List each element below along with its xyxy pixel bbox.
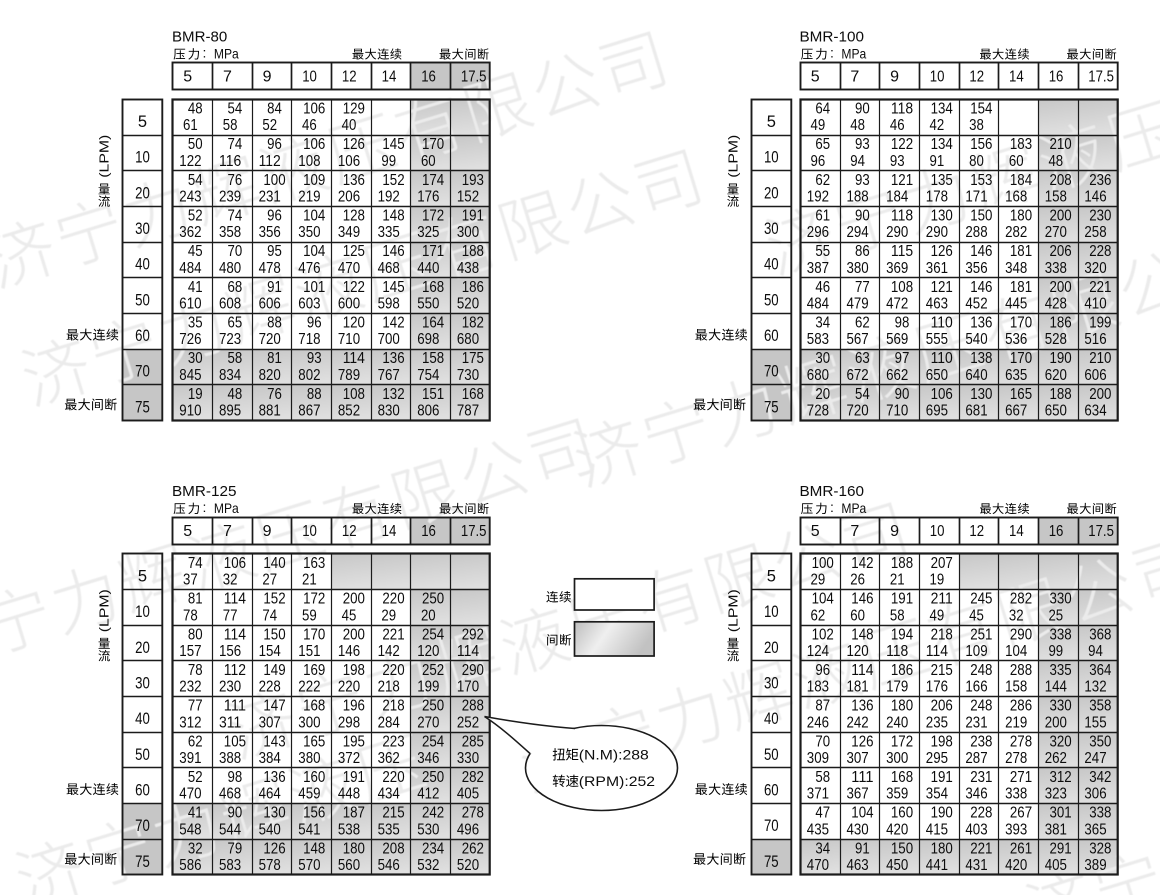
svg-text:620: 620 [1045,367,1067,384]
svg-text:130: 130 [263,805,285,822]
svg-text:168: 168 [462,386,484,403]
svg-text:157: 157 [179,643,201,660]
svg-text:40: 40 [764,710,779,728]
svg-text:349: 349 [338,224,360,241]
svg-text:96: 96 [307,315,322,332]
svg-text:77: 77 [855,279,870,296]
svg-text:431: 431 [965,857,987,874]
svg-text:384: 384 [259,750,281,767]
svg-text:362: 362 [179,224,201,241]
svg-text:154: 154 [259,643,281,660]
svg-text:405: 405 [457,786,479,803]
svg-text:62: 62 [811,607,826,624]
svg-text:358: 358 [1089,698,1111,715]
svg-text:93: 93 [855,172,870,189]
svg-text:41: 41 [188,279,203,296]
svg-text:290: 290 [926,224,948,241]
svg-text:468: 468 [378,260,400,277]
svg-text:258: 258 [1084,224,1106,241]
svg-text:640: 640 [965,367,987,384]
svg-text:110: 110 [931,350,953,367]
svg-text:(N.M):288: (N.M):288 [579,748,649,764]
svg-text:239: 239 [219,189,241,206]
svg-text:387: 387 [807,260,829,277]
svg-text:220: 220 [382,591,404,608]
svg-text:282: 282 [1005,224,1027,241]
svg-text:307: 307 [259,714,281,731]
svg-text:282: 282 [462,769,484,786]
svg-text:7: 7 [223,69,232,86]
svg-text:698: 698 [417,331,439,348]
svg-text:220: 220 [338,679,360,696]
svg-text:789: 789 [338,367,360,384]
svg-text:106: 106 [224,555,246,572]
svg-text:228: 228 [970,805,992,822]
svg-text:470: 470 [807,857,829,874]
svg-text:367: 367 [847,786,869,803]
svg-text:76: 76 [267,386,282,403]
svg-text:94: 94 [1088,643,1103,660]
svg-text:452: 452 [965,296,987,313]
svg-text:248: 248 [970,698,992,715]
svg-text:186: 186 [1050,315,1072,332]
svg-text:191: 191 [891,591,913,608]
svg-text:163: 163 [303,555,325,572]
svg-text:158: 158 [422,350,444,367]
svg-text:191: 191 [931,769,953,786]
svg-text:99: 99 [381,153,396,170]
svg-text:140: 140 [263,555,285,572]
svg-text:134: 134 [931,100,953,117]
svg-text:180: 180 [1010,207,1032,224]
svg-text:62: 62 [815,172,830,189]
svg-text:723: 723 [219,331,241,348]
svg-text:578: 578 [259,857,281,874]
svg-text:26: 26 [850,572,865,589]
svg-text:434: 434 [378,786,400,803]
svg-text:176: 176 [926,679,948,696]
svg-text:496: 496 [457,821,479,838]
svg-text:516: 516 [1084,331,1106,348]
svg-text:90: 90 [895,386,910,403]
svg-text:218: 218 [931,626,953,643]
svg-text:222: 222 [298,679,320,696]
svg-text:270: 270 [1045,224,1067,241]
svg-text:220: 220 [382,662,404,679]
svg-text:88: 88 [267,315,282,332]
svg-text:29: 29 [381,607,396,624]
svg-text:77: 77 [223,607,238,624]
svg-text:130: 130 [970,386,992,403]
svg-text:250: 250 [422,591,444,608]
svg-text:40: 40 [342,117,357,134]
svg-text:47: 47 [815,805,830,822]
svg-text:330: 330 [1050,698,1072,715]
svg-text:867: 867 [298,403,320,420]
svg-text:754: 754 [417,367,439,384]
svg-text:10: 10 [764,603,779,621]
svg-text:242: 242 [847,714,869,731]
svg-text:300: 300 [298,714,320,731]
svg-text:261: 261 [1010,840,1032,857]
svg-text:58: 58 [890,607,905,624]
svg-text:541: 541 [298,821,320,838]
svg-text::: : [203,499,207,515]
svg-text:250: 250 [422,769,444,786]
svg-text:45: 45 [188,243,203,260]
svg-text:129: 129 [343,100,365,117]
svg-text:42: 42 [930,117,945,134]
svg-text:14: 14 [1009,523,1024,540]
svg-text:208: 208 [1050,172,1072,189]
svg-text:16: 16 [1049,69,1064,86]
svg-text:231: 231 [965,714,987,731]
svg-text:634: 634 [1084,403,1106,420]
svg-text:182: 182 [462,315,484,332]
svg-text:193: 193 [462,172,484,189]
svg-text:371: 371 [807,786,829,803]
svg-text:251: 251 [970,626,992,643]
svg-text:136: 136 [343,172,365,189]
svg-text:48: 48 [850,117,865,134]
svg-text::: : [830,499,834,515]
svg-text:9: 9 [263,523,272,540]
svg-text:60: 60 [135,327,150,345]
svg-text:211: 211 [931,591,953,608]
svg-text:165: 165 [1010,386,1032,403]
svg-text:223: 223 [382,733,404,750]
svg-text:40: 40 [135,256,150,274]
svg-text:77: 77 [188,698,203,715]
svg-text:410: 410 [1084,296,1106,313]
svg-text:362: 362 [378,750,400,767]
svg-text:412: 412 [417,786,439,803]
svg-text:681: 681 [965,403,987,420]
svg-text:10: 10 [764,149,779,167]
svg-text:463: 463 [926,296,948,313]
svg-text:179: 179 [886,679,908,696]
svg-text:88: 88 [307,386,322,403]
svg-text:10: 10 [135,603,150,621]
svg-text:484: 484 [807,296,829,313]
svg-text:148: 148 [303,840,325,857]
svg-text:278: 278 [1005,750,1027,767]
svg-text:650: 650 [926,367,948,384]
svg-text:12: 12 [969,69,984,86]
svg-text:834: 834 [219,367,241,384]
svg-text:168: 168 [891,769,913,786]
svg-text:726: 726 [179,331,201,348]
svg-text:19: 19 [188,386,203,403]
svg-text:802: 802 [298,367,320,384]
svg-text:21: 21 [890,572,905,589]
svg-text:145: 145 [382,279,404,296]
svg-text:364: 364 [1089,662,1111,679]
svg-text:338: 338 [1089,805,1111,822]
svg-text:96: 96 [815,662,830,679]
svg-text:231: 231 [970,769,992,786]
svg-text:134: 134 [931,136,953,153]
svg-text:104: 104 [303,243,325,260]
svg-text:600: 600 [338,296,360,313]
svg-text:114: 114 [851,662,873,679]
svg-text:188: 188 [847,189,869,206]
svg-text:93: 93 [855,136,870,153]
svg-text:325: 325 [417,224,439,241]
svg-text:152: 152 [263,591,285,608]
svg-text:40: 40 [135,710,150,728]
svg-text:389: 389 [1084,857,1106,874]
svg-text:730: 730 [457,367,479,384]
svg-text:484: 484 [179,260,201,277]
svg-text:240: 240 [886,714,908,731]
svg-text:96: 96 [267,136,282,153]
svg-text:16: 16 [1049,523,1064,540]
svg-text:14: 14 [382,523,397,540]
svg-text:767: 767 [378,367,400,384]
svg-text:84: 84 [267,100,282,117]
svg-text:20: 20 [135,184,150,202]
svg-text:156: 156 [303,805,325,822]
svg-text:323: 323 [1045,786,1067,803]
svg-text:242: 242 [422,805,444,822]
svg-text:380: 380 [847,260,869,277]
svg-text:667: 667 [1005,403,1027,420]
svg-text:288: 288 [965,224,987,241]
svg-text:540: 540 [259,821,281,838]
svg-text:108: 108 [343,386,365,403]
svg-text:10: 10 [302,69,317,86]
svg-text:60: 60 [850,607,865,624]
svg-text:90: 90 [228,805,243,822]
svg-text:170: 170 [1010,315,1032,332]
svg-text:881: 881 [259,403,281,420]
svg-text:32: 32 [1009,607,1024,624]
svg-text:109: 109 [965,643,987,660]
svg-text:17.5: 17.5 [1088,69,1114,86]
svg-text:46: 46 [302,117,317,134]
svg-text:64: 64 [815,100,830,117]
svg-text:695: 695 [926,403,948,420]
svg-text:206: 206 [1050,243,1072,260]
svg-text:90: 90 [855,100,870,117]
svg-text:282: 282 [1010,591,1032,608]
svg-text:170: 170 [422,136,444,153]
svg-text:171: 171 [965,189,987,206]
svg-text:710: 710 [886,403,908,420]
svg-text:200: 200 [1045,714,1067,731]
svg-text:BMR-100: BMR-100 [800,30,865,46]
svg-text:146: 146 [338,643,360,660]
svg-text:122: 122 [343,279,365,296]
svg-text:180: 180 [343,840,365,857]
svg-text:480: 480 [219,260,241,277]
svg-text:278: 278 [1010,733,1032,750]
svg-text:168: 168 [303,698,325,715]
svg-text:478: 478 [259,260,281,277]
svg-text:110: 110 [931,315,953,332]
svg-text:5: 5 [767,113,776,131]
svg-text:97: 97 [895,350,910,367]
svg-text:171: 171 [422,243,444,260]
svg-text:(LPM): (LPM) [97,135,112,178]
svg-text:170: 170 [457,679,479,696]
svg-text:170: 170 [303,626,325,643]
svg-text:5: 5 [767,567,776,585]
svg-text:151: 151 [298,643,320,660]
svg-text:38: 38 [969,117,984,134]
svg-text:12: 12 [342,523,357,540]
svg-text:294: 294 [847,224,869,241]
svg-text:41: 41 [188,805,203,822]
svg-text:320: 320 [1050,733,1072,750]
svg-text:78: 78 [188,662,203,679]
svg-text:338: 338 [1005,786,1027,803]
svg-text:806: 806 [417,403,439,420]
svg-text:555: 555 [926,331,948,348]
svg-text:300: 300 [457,224,479,241]
svg-text:96: 96 [811,153,826,170]
svg-text:124: 124 [807,643,829,660]
svg-text:7: 7 [850,69,859,86]
svg-text:87: 87 [815,698,830,715]
svg-text:112: 112 [224,662,246,679]
svg-text:230: 230 [1089,207,1111,224]
svg-text:720: 720 [847,403,869,420]
svg-text:440: 440 [417,260,439,277]
svg-text:125: 125 [343,243,365,260]
svg-text:464: 464 [259,786,281,803]
svg-text:190: 190 [931,805,953,822]
svg-text:320: 320 [1084,260,1106,277]
svg-text:290: 290 [1010,626,1032,643]
svg-text:181: 181 [1010,243,1032,260]
svg-text:50: 50 [764,291,779,309]
svg-text:17.5: 17.5 [461,523,487,540]
svg-text:718: 718 [298,331,320,348]
svg-text:181: 181 [1010,279,1032,296]
svg-text:142: 142 [378,643,400,660]
svg-text:150: 150 [263,626,285,643]
svg-text:16: 16 [421,523,436,540]
svg-text:298: 298 [338,714,360,731]
svg-text:30: 30 [188,350,203,367]
svg-text:191: 191 [343,769,365,786]
svg-text:98: 98 [895,315,910,332]
svg-text:219: 219 [1005,714,1027,731]
svg-text:114: 114 [343,350,365,367]
svg-text:165: 165 [303,733,325,750]
svg-text:238: 238 [970,733,992,750]
svg-text:672: 672 [847,367,869,384]
svg-text:50: 50 [135,291,150,309]
svg-text:610: 610 [179,296,201,313]
svg-text:164: 164 [422,315,444,332]
svg-text:532: 532 [417,857,439,874]
svg-text:35: 35 [188,315,203,332]
svg-text:210: 210 [1089,350,1111,367]
svg-text:538: 538 [338,821,360,838]
svg-text:420: 420 [886,821,908,838]
svg-text:20: 20 [764,184,779,202]
svg-text:567: 567 [847,331,869,348]
svg-text:548: 548 [179,821,201,838]
svg-text:186: 186 [462,279,484,296]
svg-text:12: 12 [969,523,984,540]
svg-text:126: 126 [343,136,365,153]
svg-text:146: 146 [970,279,992,296]
svg-text:393: 393 [1005,821,1027,838]
svg-text:169: 169 [303,662,325,679]
svg-text:200: 200 [1089,386,1111,403]
svg-text:68: 68 [228,279,243,296]
svg-text:121: 121 [931,279,953,296]
svg-text:52: 52 [262,117,277,134]
svg-text:118: 118 [886,643,908,660]
svg-text:254: 254 [422,626,444,643]
svg-text::: : [203,45,207,61]
svg-text:132: 132 [1084,679,1106,696]
svg-text:17.5: 17.5 [1088,523,1114,540]
svg-text:356: 356 [965,260,987,277]
svg-text:120: 120 [847,643,869,660]
svg-text:287: 287 [965,750,987,767]
svg-text:7: 7 [850,523,859,540]
svg-text:10: 10 [930,523,945,540]
svg-text:845: 845 [179,367,201,384]
svg-text:BMR-80: BMR-80 [172,30,227,46]
svg-text:603: 603 [298,296,320,313]
svg-text:335: 335 [1050,662,1072,679]
svg-text:90: 90 [855,207,870,224]
svg-text:231: 231 [259,189,281,206]
svg-text:80: 80 [188,626,203,643]
svg-text:143: 143 [263,733,285,750]
svg-text:86: 86 [855,243,870,260]
svg-text:20: 20 [135,639,150,657]
svg-text:106: 106 [303,100,325,117]
svg-text:662: 662 [886,367,908,384]
svg-text:91: 91 [855,840,870,857]
svg-text:121: 121 [891,172,913,189]
svg-text:910: 910 [179,403,201,420]
svg-text:830: 830 [378,403,400,420]
svg-text:99: 99 [1048,643,1063,660]
svg-text:350: 350 [298,224,320,241]
svg-text:218: 218 [382,698,404,715]
svg-text:118: 118 [891,100,913,117]
svg-text:60: 60 [135,782,150,800]
svg-text:435: 435 [807,821,829,838]
svg-text:191: 191 [462,207,484,224]
svg-text:270: 270 [417,714,439,731]
svg-text:75: 75 [764,398,779,416]
svg-text:221: 221 [382,626,404,643]
svg-text:178: 178 [926,189,948,206]
svg-text:138: 138 [970,350,992,367]
svg-text:290: 290 [462,662,484,679]
svg-text:208: 208 [382,840,404,857]
svg-text:144: 144 [1045,679,1067,696]
svg-text:312: 312 [1050,769,1072,786]
svg-text:346: 346 [965,786,987,803]
svg-text:175: 175 [462,350,484,367]
svg-text:130: 130 [931,207,953,224]
svg-text:100: 100 [263,172,285,189]
svg-text:142: 142 [851,555,873,572]
svg-text:16: 16 [421,69,436,86]
svg-text:284: 284 [378,714,400,731]
